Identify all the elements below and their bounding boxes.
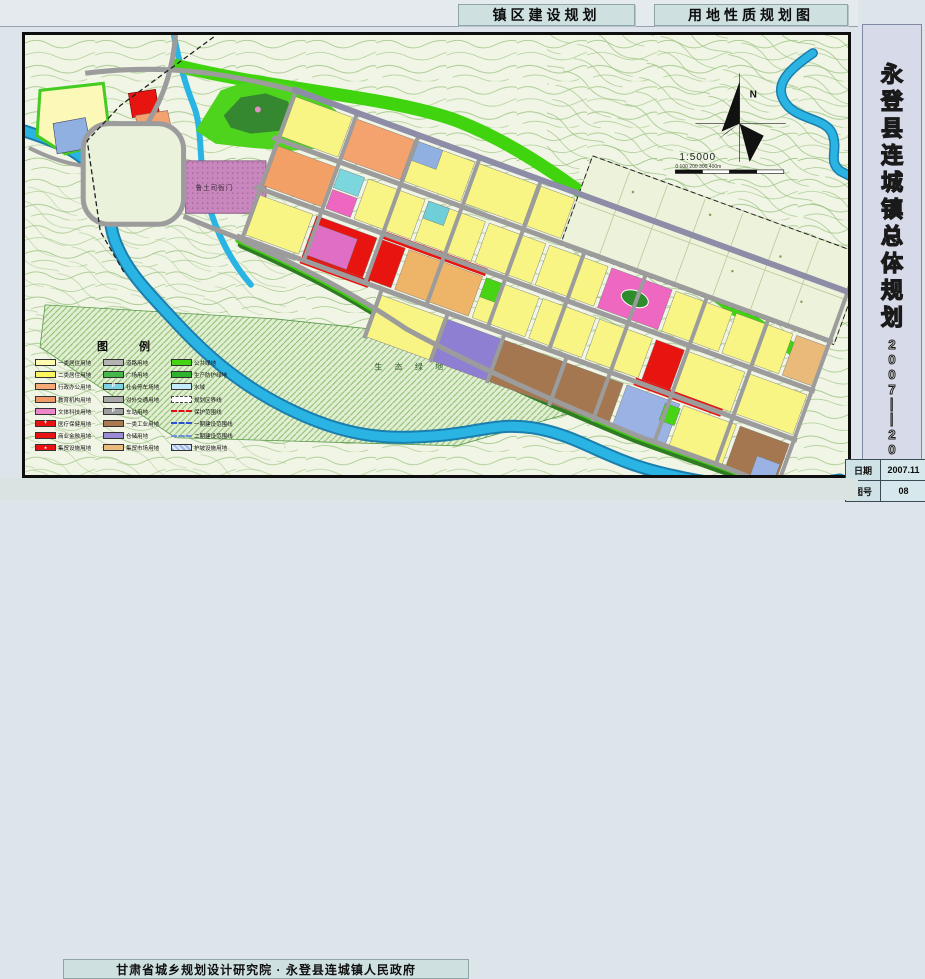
legend-swatch: [171, 383, 192, 390]
legend-item: 一类居住用地: [35, 358, 100, 367]
legend-item: 集贸市场用地: [103, 443, 168, 452]
legend-swatch: [171, 422, 192, 424]
sheet-number-value: 08: [881, 481, 925, 501]
footer-band: 甘肃省城乡规划设计研究院 · 永登县连城镇人民政府: [0, 478, 858, 500]
legend-label: 对外交通用地: [126, 395, 159, 403]
legend-swatch: [103, 371, 124, 378]
date-label: 日期: [846, 460, 880, 480]
legend-item: 二期建设范围线: [171, 431, 236, 440]
legend-swatch: [103, 396, 124, 403]
legend-item: 对外交通用地: [103, 395, 168, 404]
legend-swatch: [35, 371, 56, 378]
legend-label: 一期建设范围线: [194, 419, 233, 427]
sheet-title-left: 镇区建设规划: [458, 4, 635, 26]
legend-swatch: [103, 383, 124, 390]
legend-item: 教育机构用地: [35, 395, 100, 404]
plan-title-vertical: 永登县连城镇总体规划: [881, 61, 903, 331]
legend-item: 公共绿地: [171, 358, 236, 367]
legend-swatch: [35, 432, 56, 439]
legend-item: 文体科技用地: [35, 407, 100, 416]
legend-label: 广场用地: [126, 371, 148, 379]
top-band: 镇区建设规划 用地性质规划图: [0, 0, 925, 27]
legend-label: 社会停车场地: [126, 383, 159, 391]
legend-label: 一类工业用地: [126, 419, 159, 427]
north-label: N: [750, 89, 757, 100]
legend-item: 医疗保健用地: [35, 419, 100, 428]
legend-swatch: [35, 408, 56, 415]
legend-swatch: [171, 410, 192, 412]
legend-label: 仓储用地: [126, 431, 148, 439]
legend-label: 二期建设范围线: [194, 431, 233, 439]
legend-item: 保护范围线: [171, 407, 236, 416]
legend-label: 保护范围线: [194, 407, 222, 415]
legend-label: 集贸设施用地: [58, 444, 91, 452]
legend-swatch: [35, 383, 56, 390]
legend-item: 广场用地: [103, 370, 168, 379]
legend-label: 一类居住用地: [58, 358, 91, 366]
legend-label: 公共绿地: [194, 358, 216, 366]
legend-item: 仓储用地: [103, 431, 168, 440]
legend-column-1: 一类居住用地二类居住用地行政办公用地教育机构用地文体科技用地医疗保健用地商业金融…: [35, 358, 100, 452]
legend-item: 护坡设施用地: [171, 443, 236, 452]
legend-swatch: [35, 420, 56, 427]
legend-item: 车站用地: [103, 407, 168, 416]
legend-swatch: [35, 359, 56, 366]
legend-item: 道路用地: [103, 358, 168, 367]
legend-item: 生产防护绿地: [171, 370, 236, 379]
legend-swatch: [103, 420, 124, 427]
legend-label: 商业金融用地: [58, 431, 91, 439]
legend-label: 医疗保健用地: [58, 419, 91, 427]
legend-swatch: [171, 444, 192, 451]
legend-item: 社会停车场地: [103, 382, 168, 391]
legend-label: 生产防护绿地: [194, 371, 227, 379]
legend-label: 护坡设施用地: [194, 444, 227, 452]
legend-label: 集贸市场用地: [126, 444, 159, 452]
legend-item: 规划区界线: [171, 395, 236, 404]
legend-item: 一期建设范围线: [171, 419, 236, 428]
legend-label: 规划区界线: [194, 395, 222, 403]
historic-site-label: 鲁土司衙门: [196, 183, 234, 192]
legend-item: 行政办公用地: [35, 382, 100, 391]
credit-box: 甘肃省城乡规划设计研究院 · 永登县连城镇人民政府: [63, 959, 469, 979]
planning-sheet: 镇区建设规划 用地性质规划图: [0, 0, 925, 500]
legend-label: 二类居住用地: [58, 371, 91, 379]
legend-item: 集贸设施用地: [35, 443, 100, 452]
date-value: 2007.11: [881, 460, 925, 480]
map-frame: 生 态 绿 地: [22, 32, 851, 478]
legend-swatch: [171, 396, 192, 403]
sidebar-panel: 永登县连城镇总体规划 2007——2020: [862, 24, 922, 460]
sidebar: 永登县连城镇总体规划 2007——2020: [858, 0, 925, 500]
legend-swatch: [103, 444, 124, 451]
legend-item: 商业金融用地: [35, 431, 100, 440]
legend-swatch: [103, 408, 124, 415]
legend: 图 例 一类居住用地二类居住用地行政办公用地教育机构用地文体科技用地医疗保健用地…: [35, 338, 240, 468]
legend-item: 水域: [171, 382, 236, 391]
legend-item: 一类工业用地: [103, 419, 168, 428]
legend-swatch: [103, 359, 124, 366]
legend-label: 行政办公用地: [58, 383, 91, 391]
legend-swatch: [171, 371, 192, 378]
legend-swatch: [103, 432, 124, 439]
legend-label: 文体科技用地: [58, 407, 91, 415]
legend-label: 道路用地: [126, 358, 148, 366]
legend-column-2: 道路用地广场用地社会停车场地对外交通用地车站用地一类工业用地仓储用地集贸市场用地: [103, 358, 168, 452]
legend-label: 水域: [194, 383, 205, 391]
legend-swatch: [35, 396, 56, 403]
legend-swatch: [35, 444, 56, 451]
legend-label: 车站用地: [126, 407, 148, 415]
legend-item: 二类居住用地: [35, 370, 100, 379]
scale-ratio: 1:5000: [679, 152, 716, 163]
legend-title: 图 例: [97, 338, 240, 354]
scalebar-labels: 0 100 200 300 400m: [675, 164, 721, 170]
legend-column-3: 公共绿地生产防护绿地水域规划区界线保护范围线一期建设范围线二期建设范围线护坡设施…: [171, 358, 236, 452]
sheet-title-right: 用地性质规划图: [654, 4, 848, 26]
legend-swatch: [171, 359, 192, 366]
legend-swatch: [171, 435, 192, 437]
legend-label: 教育机构用地: [58, 395, 91, 403]
